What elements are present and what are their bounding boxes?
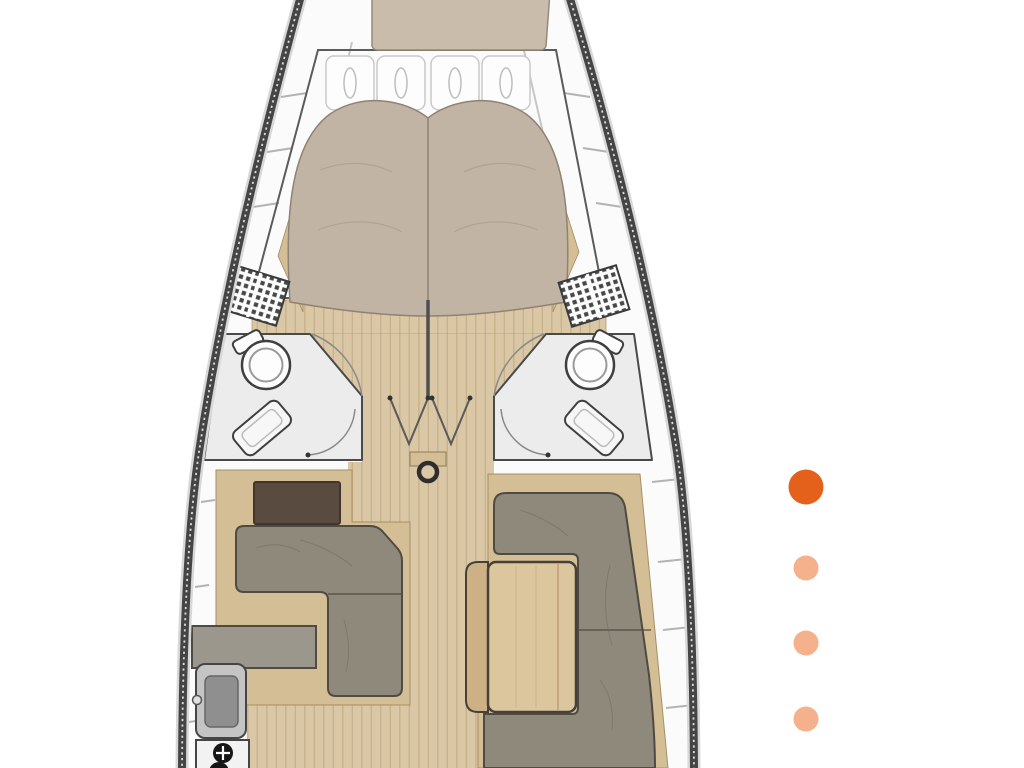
salon-table-leaf — [466, 562, 488, 712]
salon-table-top — [488, 562, 576, 712]
galley-counter — [192, 626, 316, 668]
yacht-floorplan — [0, 0, 1024, 768]
carousel-dot-1[interactable] — [789, 470, 824, 505]
galley-floor — [247, 695, 348, 768]
listing-image-viewport — [0, 0, 1024, 768]
v-berth-bed — [288, 101, 568, 316]
carousel-dot-2[interactable] — [794, 556, 819, 581]
sink-basin — [205, 676, 238, 727]
door-hinge — [388, 396, 393, 401]
chart-table — [254, 482, 340, 524]
door-hinge — [546, 453, 551, 458]
door-hinge — [430, 396, 435, 401]
mast-step — [419, 463, 437, 481]
door-hinge — [306, 453, 311, 458]
carousel-dot-4[interactable] — [794, 707, 819, 732]
carousel-dots — [789, 470, 824, 732]
salon-table — [466, 562, 576, 712]
carousel-dot-3[interactable] — [794, 631, 819, 656]
bow-cushion — [372, 0, 550, 50]
faucet — [193, 696, 202, 705]
door-hinge — [468, 396, 473, 401]
galley-sink — [193, 664, 247, 738]
galley-stove — [196, 740, 249, 768]
